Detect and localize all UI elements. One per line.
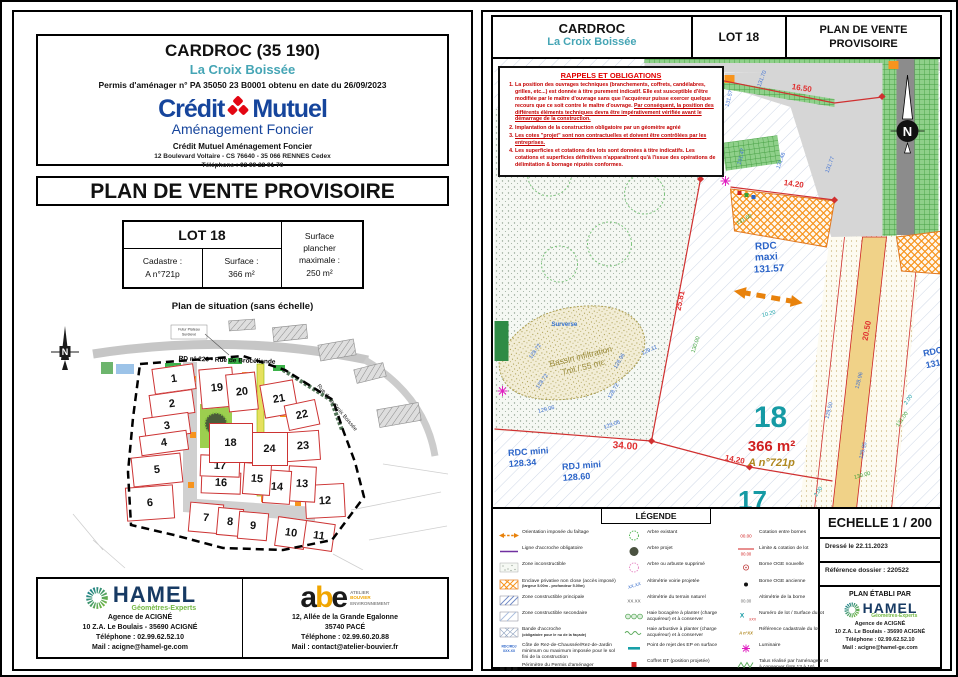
hamel-address: 10 Z.A. Le Boulais - 35690 ACIGNÉ [83, 623, 198, 633]
abe-block: abe ATELIER BOUVIER ENVIRONNEMENT 12, Al… [243, 579, 447, 657]
header-commune-cell: CARDROC La Croix Boissée [493, 17, 693, 57]
legend-item: Zone constructible secondaire [499, 611, 620, 625]
floor-area-value: 250 m² [288, 267, 352, 279]
svg-text:128.34: 128.34 [508, 457, 536, 469]
svg-text:XX.XX: XX.XX [626, 580, 642, 589]
legend-icon-tree-removed [624, 562, 645, 576]
credit-mutuel-tagline: Aménagement Foncier [38, 121, 447, 137]
legend-label: Point de rejet des EP en surface [647, 643, 717, 649]
legend-item: Haie arbustive à planter (charge acquére… [624, 627, 732, 641]
legend-item: Ligne d'accroche obligatoire [499, 546, 620, 560]
legend-icon-lot-num: XXXX m² [736, 611, 757, 625]
page-left: CARDROC (35 190) La Croix Boissée Permis… [12, 10, 473, 671]
rappels-title: RAPPELS ET OBLIGATIONS [504, 71, 718, 80]
site-plan-lot: 18 [209, 423, 253, 463]
legend-label: Altimétrie voirie projetée [647, 579, 699, 585]
floor-area-cell: Surface plancher maximale : 250 m² [282, 222, 358, 287]
legend-title: LÉGENDE [601, 509, 711, 524]
legend-item: Zone inconstructible [499, 562, 620, 576]
site-plan-lot: 15 [241, 462, 271, 496]
legend-icon-cotation-line: 00.00 [736, 546, 757, 560]
adjacent-lot-label: 17 [738, 485, 767, 509]
abe-mail: Mail : contact@atelier-bouvier.fr [292, 643, 398, 653]
legend-sublabel: (obligatoire pour le nu de la façade) [522, 633, 586, 637]
legend-item: Coffret BT (position projetée) [624, 659, 732, 673]
left-footer: HAMEL Géomètres-Experts Agence de ACIGNÉ… [36, 577, 449, 659]
surface-label: Surface : [205, 255, 279, 268]
cadastre-cell: Cadastre : A n°721p [124, 249, 203, 287]
legend-item: XX.XXAltimétrie voirie projetée [624, 579, 732, 593]
surface-value: 366 m² [205, 268, 279, 281]
legend-column-3: 00.00Cotation entre bornes00.00Limite & … [736, 530, 829, 676]
hamel-logo: HAMEL Géomètres-Experts [84, 584, 196, 614]
legend-label: Haie bocagère à planter (charge acquéreu… [647, 611, 732, 623]
abe-logo-letters: abe [300, 583, 346, 613]
site-plan-lot: 9 [236, 510, 268, 541]
legend-item: Enclave privative non close (accès impos… [499, 579, 620, 593]
legend-label: Bande d'accroche(obligatoire pour le nu … [522, 627, 586, 637]
abe-address2: 35740 PACÉ [325, 623, 365, 633]
scale-label: ECHELLE 1 / 200 [820, 509, 940, 539]
legend-icon-borne-alti: 00.00 [736, 595, 757, 609]
svg-text:X: X [740, 612, 745, 619]
svg-text:XX.XX: XX.XX [627, 598, 640, 603]
hamel-mail: Mail : acigne@hamel-ge.com [820, 645, 940, 653]
hamel-agency: Agence de ACIGNÉ [108, 613, 172, 623]
legend-item: Zone constructible principale [499, 595, 620, 609]
svg-text:A n°XX: A n°XX [738, 631, 753, 636]
legend-label: Orientation imposée du faîtage [522, 530, 589, 536]
hamel-address: 10 Z.A. Le Boulais - 35690 ACIGNÉ [820, 629, 940, 637]
plan-annotation: 34.00 [612, 440, 638, 453]
legend-label: Haie arbustive à planter (charge acquére… [647, 627, 732, 639]
legend-icon-orange-hatch [499, 579, 520, 593]
legend-label: Borne OGE nouvelle [759, 562, 804, 568]
legend-icon-borne-old [736, 579, 757, 593]
situation-plan: 123456789101112131415161718192021222324 … [33, 314, 453, 570]
site-plan-lot: 24 [252, 432, 288, 466]
svg-text:maxi: maxi [755, 251, 779, 263]
cadastre-value: A n°721p [126, 268, 200, 281]
established-by-label: PLAN ÉTABLI PAR [820, 591, 940, 598]
legend-icon-blue-hatch-light [499, 611, 520, 625]
legend-icon-cotation: 00.00 [736, 530, 757, 544]
credit-mutuel-logo: Crédit Mutuel [38, 95, 447, 124]
rappels-item: Les cotes "projet" sont non contractuell… [515, 133, 718, 147]
legend-item: Arbre projet [624, 546, 732, 560]
abe-address1: 12, Allée de la Grande Egalonne [292, 613, 398, 623]
legend-icon-alti-natural: XX.XX [624, 595, 645, 609]
legend-icon-tree-existing [624, 530, 645, 544]
left-header-box: CARDROC (35 190) La Croix Boissée Permis… [36, 34, 449, 166]
legend-item: Point de rejet des EP en surface [624, 643, 732, 657]
legend-column-1: Orientation imposée du faîtageLigne d'ac… [499, 530, 620, 677]
permit-line: Permis d'aménager n° PA 35050 23 B0001 o… [38, 80, 447, 90]
header-doc-cell: PLAN DE VENTE PROVISOIRE [787, 17, 940, 57]
legend-label: Enclave privative non close (accès impos… [522, 579, 616, 589]
legend-icon-hedge-arbustive [624, 627, 645, 641]
legend-label: Ligne d'accroche obligatoire [522, 546, 583, 552]
hamel-name: HAMEL [113, 584, 196, 606]
legend-item: Arbre existant [624, 530, 732, 544]
legend-label: Arbre existant [647, 530, 677, 536]
date-label: Dressé le 22.11.2023 [820, 539, 940, 563]
legend-icon-tree-project [624, 546, 645, 560]
header-development: La Croix Boissée [493, 36, 691, 48]
legend-icon-orientation-arrow [499, 530, 520, 544]
legend-label: Coffret BT (position projetée) [647, 659, 710, 665]
info-panel: ECHELLE 1 / 200 Dressé le 22.11.2023 Réf… [818, 509, 940, 667]
legend-item: Bande d'accroche(obligatoire pour le nu … [499, 627, 620, 641]
site-plan-lot: 5 [130, 452, 183, 487]
legend-item: Orientation imposée du faîtage [499, 530, 620, 544]
legend-item: Borne OGE nouvelle [736, 562, 829, 576]
legend-item: Borne OGE ancienne [736, 579, 829, 593]
legend-label: Luminaire [759, 643, 780, 649]
legend-icon-borne-new [736, 562, 757, 576]
lot-plan: N 18 366 m² A n°721p 17 RDC maxi 131.57 … [491, 59, 942, 509]
svg-text:00.00: 00.00 [741, 552, 752, 557]
floor-area-label: Surface plancher maximale : [288, 230, 352, 267]
site-plan-lot: 11 [302, 520, 336, 552]
hamel-mail: Mail : acigne@hamel-ge.com [92, 643, 188, 653]
legend-label: Limite & cotation de lot [759, 546, 808, 552]
legend-label: Numéro de lot / Surface du lot [759, 611, 824, 617]
credit-mutuel-word2: Mutuel [252, 95, 327, 124]
legend-item: 00.00Cotation entre bornes [736, 530, 829, 544]
legend-item: RDC/RDJXXX.XXCôte de Rez-de-Chaussée/Rez… [499, 643, 620, 660]
plan-annotation: Surverse [552, 322, 578, 328]
legend-label: Côte de Rez-de-Chaussée/Rez-de-Jardin mi… [522, 643, 620, 660]
svg-text:128.60: 128.60 [562, 471, 590, 483]
right-header: CARDROC La Croix Boissée LOT 18 PLAN DE … [491, 15, 942, 59]
legend-icon-luminaire [736, 643, 757, 657]
hamel-logo-icon [84, 585, 110, 611]
svg-text:XXX.XX: XXX.XX [503, 649, 516, 653]
company-address: 12 Boulevard Voltaire - CS 76640 - 35 06… [38, 153, 447, 160]
hamel-logo-icon [843, 601, 861, 619]
lot-number-header: LOT 18 [124, 222, 282, 249]
svg-text:131.57: 131.57 [753, 263, 785, 276]
legend-item: XXXX m²Numéro de lot / Surface du lot [736, 611, 829, 625]
legend-icon-ep-point [624, 643, 645, 657]
company-phone: Téléphone : 02 99 22 91 70 [38, 162, 447, 169]
legend-icon-crosshatch [499, 627, 520, 641]
hamel-phone: Téléphone : 02.99.62.52.10 [820, 637, 940, 645]
legend-label: Périmètre du Permis d'aménager [522, 663, 594, 669]
legend-item: Luminaire [736, 643, 829, 657]
legend-icon-talus [736, 659, 757, 673]
header-commune: CARDROC [493, 21, 691, 36]
legend-icon-rdc-note: RDC/RDJXXX.XX [499, 643, 520, 657]
development-name: La Croix Boissée [38, 62, 447, 77]
lot-number-label: 18 [754, 401, 787, 434]
surface-cell: Surface : 366 m² [203, 249, 282, 287]
legend-label: Zone inconstructible [522, 562, 566, 568]
svg-text:RDC/RDJ: RDC/RDJ [501, 645, 516, 649]
credit-mutuel-word1: Crédit [158, 95, 224, 124]
legend-icon-blue-hatch [499, 595, 520, 609]
legend-item: Périmètre du Permis d'aménager [499, 663, 620, 677]
legend-label: Altimétrie de la borne [759, 595, 805, 601]
lot-area-label: 366 m² [748, 438, 796, 455]
rappels-item: La position des ouvrages techniques (bra… [515, 82, 718, 123]
legend-icon-alti-projected: XX.XX [624, 579, 645, 593]
legend-icon-purple-line [499, 546, 520, 560]
legend-label: Talus réalisé par l'aménageur et à conse… [759, 659, 829, 671]
legend-icon-hedge-bocagere [624, 611, 645, 625]
legend-item: Haie bocagère à planter (charge acquéreu… [624, 611, 732, 625]
site-plan-lot: 20 [225, 371, 259, 412]
legend-label: Référence cadastrale du lot [759, 627, 819, 633]
commune-title: CARDROC (35 190) [38, 41, 447, 61]
reference-label: Référence dossier : 220522 [820, 563, 940, 587]
legend-item: XX.XXAltimétrie du terrain naturel [624, 595, 732, 609]
legend-item: 00.00Altimétrie de la borne [736, 595, 829, 609]
legend-icon-black-dashes [499, 663, 520, 677]
legend-label: Cotation entre bornes [759, 530, 806, 536]
rappels-item: Les superficies et cotations des lots so… [515, 148, 718, 169]
hamel-logo-small: HAMEL Géomètres-Experts [820, 601, 940, 619]
credit-mutuel-logo-icon [226, 95, 250, 124]
header-lot-cell: LOT 18 [693, 17, 787, 57]
hamel-tagline: Géomètres-Experts [863, 613, 918, 619]
rappels-item: Implantation de la construction obligato… [515, 125, 718, 132]
abe-name3: ENVIRONNEMENT [350, 601, 390, 607]
legend-icon-cad-ref: A n°XX [736, 627, 757, 641]
hamel-agency: Agence de ACIGNÉ [820, 621, 940, 629]
legend-item: Talus réalisé par l'aménageur et à conse… [736, 659, 829, 673]
north-letter-right: N [903, 124, 912, 139]
legend-column-2: Arbre existantArbre projetArbre ou arbus… [624, 530, 732, 677]
company-name: Crédit Mutuel Aménagement Foncier [38, 142, 447, 151]
legend-label: Arbre projet [647, 546, 673, 552]
svg-text:00.00: 00.00 [741, 598, 752, 603]
svg-text:00.00: 00.00 [740, 534, 752, 539]
hamel-phone: Téléphone : 02.99.62.52.10 [96, 633, 184, 643]
hamel-block: HAMEL Géomètres-Experts Agence de ACIGNÉ… [38, 579, 243, 657]
legend-item: 00.00Limite & cotation de lot [736, 546, 829, 560]
legend-sublabel: (largeur 5.00m - profondeur 5.00m) [522, 584, 616, 588]
legend-label: Zone constructible secondaire [522, 611, 587, 617]
site-plan-lot: 6 [124, 484, 174, 521]
rappels-list: La position des ouvrages techniques (bra… [504, 82, 718, 169]
cadastre-label: Cadastre : [126, 255, 200, 268]
svg-text:XXX m²: XXX m² [748, 617, 756, 621]
legend-label: Arbre ou arbuste supprimé [647, 562, 705, 568]
legend-item: Arbre ou arbuste supprimé [624, 562, 732, 576]
legend-area: LÉGENDE Orientation imposée du faîtageLi… [493, 509, 818, 667]
lot-cadastre-label: A n°721p [747, 457, 795, 469]
document-scan: CARDROC (35 190) La Croix Boissée Permis… [0, 0, 958, 677]
legend-icon-zone-dots [499, 562, 520, 576]
abe-phone: Téléphone : 02.99.60.20.88 [301, 633, 389, 643]
abe-logo: abe ATELIER BOUVIER ENVIRONNEMENT [300, 583, 389, 613]
legend-label: Altimétrie du terrain naturel [647, 595, 706, 601]
situation-plan-title: Plan de situation (sans échelle) [14, 301, 471, 312]
hamel-panel-address: Agence de ACIGNÉ 10 Z.A. Le Boulais - 35… [820, 621, 940, 653]
lot-summary-table: LOT 18 Cadastre : A n°721p Surface : 366… [122, 220, 364, 289]
site-plan-lots: 123456789101112131415161718192021222324 [33, 314, 453, 570]
site-plan-lot: 23 [284, 429, 320, 461]
legend-label: Borne OGE ancienne [759, 579, 806, 585]
rappels-box: RAPPELS ET OBLIGATIONS La position des o… [498, 66, 724, 177]
legend-icon-coffret-bt [624, 659, 645, 673]
document-title: PLAN DE VENTE PROVISOIRE [36, 176, 449, 206]
legend-item: A n°XXRéférence cadastrale du lot [736, 627, 829, 641]
right-bottom: LÉGENDE Orientation imposée du faîtageLi… [491, 509, 942, 669]
page-right: CARDROC La Croix Boissée LOT 18 PLAN DE … [481, 10, 952, 671]
legend-label: Zone constructible principale [522, 595, 584, 601]
